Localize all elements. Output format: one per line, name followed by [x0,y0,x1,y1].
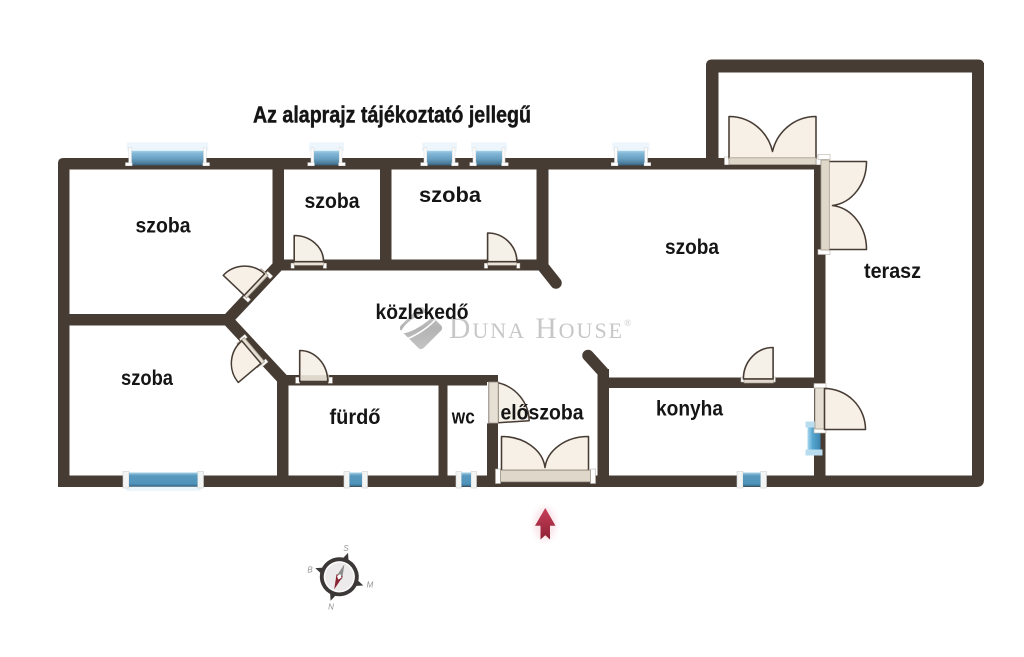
svg-text:fürdő: fürdő [330,406,381,429]
svg-text:N: N [328,603,334,612]
svg-text:wc: wc [451,406,475,428]
svg-text:DUNA HOUSE®: DUNA HOUSE® [449,313,633,345]
svg-text:előszoba: előszoba [501,402,584,425]
svg-text:B: B [307,566,313,575]
svg-text:szoba: szoba [136,214,192,238]
svg-text:Az alaprajz tájékoztató jelleg: Az alaprajz tájékoztató jellegű [253,102,531,128]
svg-text:szoba: szoba [419,184,481,207]
svg-text:M: M [367,581,374,590]
svg-text:szoba: szoba [665,236,719,259]
svg-text:szoba: szoba [305,190,360,213]
svg-text:S: S [343,544,349,553]
svg-text:terasz: terasz [864,260,921,283]
svg-text:közlekedő: közlekedő [376,301,469,324]
svg-text:konyha: konyha [656,397,723,420]
svg-text:szoba: szoba [121,367,173,390]
